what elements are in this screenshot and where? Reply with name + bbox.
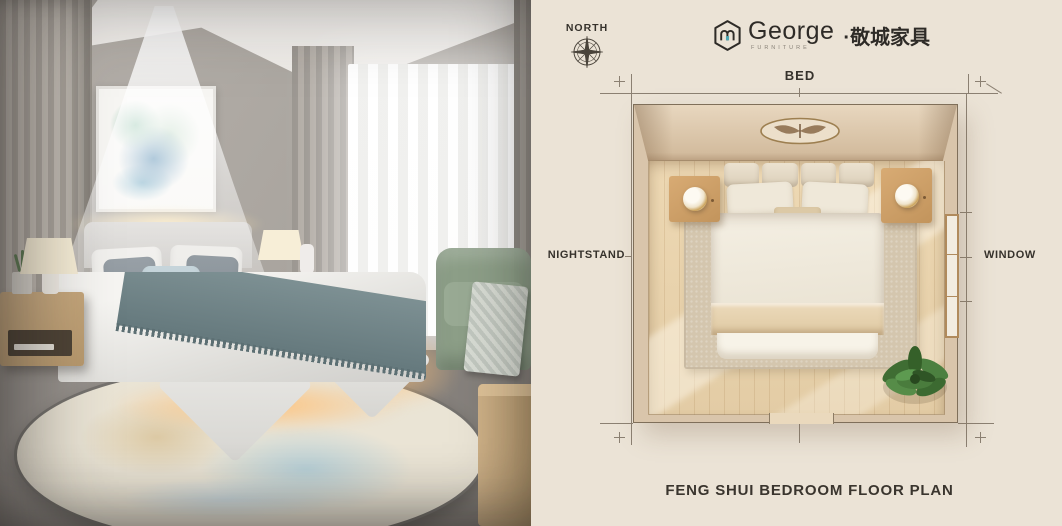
dimension-tick (631, 74, 632, 94)
brand-division: FURNITURE (751, 46, 834, 52)
room-outline (633, 104, 958, 423)
mattress-foot (717, 333, 878, 359)
brand-wordmark: George FURNITURE (748, 19, 834, 52)
window-label: WINDOW (984, 249, 1036, 261)
hexagon-monogram-icon (712, 19, 743, 52)
brand-name: George (748, 19, 834, 44)
potted-plant-top-view (877, 335, 955, 419)
dimension-tick (968, 74, 969, 94)
window-tick (960, 301, 972, 302)
dimension-line-left (631, 93, 632, 445)
window-tick (960, 212, 972, 213)
north-label: NORTH (561, 22, 613, 34)
door-opening (769, 413, 834, 424)
brand-logo: George FURNITURE ·敬城家具 (712, 19, 930, 52)
bed-label: BED (635, 68, 965, 83)
blanket-fold (711, 303, 884, 335)
table-lamp-left (20, 238, 78, 274)
window-tick (960, 257, 972, 258)
dimension-tick (799, 88, 800, 97)
nightstand-top-view-right (881, 168, 932, 223)
throw-blanket (116, 272, 426, 378)
floating-bed (58, 272, 426, 382)
compass-rose-icon (569, 34, 605, 70)
window-top-view (945, 214, 959, 338)
left-photo-panel (0, 0, 531, 526)
corner-plus-marker (614, 432, 625, 443)
corner-plus-marker (975, 76, 986, 87)
ad-composite: NORTH George FURNITURE ·敬城家具 (0, 0, 1062, 526)
nightstand-left (0, 292, 84, 366)
nightstand-label: NIGHTSTAND (541, 249, 625, 261)
nightstand-tick (625, 256, 632, 257)
candle-jar (300, 244, 314, 274)
wood-bench (478, 384, 531, 526)
knit-throw (463, 281, 528, 376)
corner-plus-marker (614, 76, 625, 87)
nightstand-top-view-left (669, 176, 720, 222)
book (14, 344, 54, 350)
brand-cjk-name: ·敬城家具 (843, 21, 930, 50)
plan-caption: FENG SHUI BEDROOM FLOOR PLAN (544, 482, 1062, 499)
nightstand-shelf (8, 330, 72, 356)
corner-plus-marker (975, 432, 986, 443)
dimension-line-bottom-right (958, 423, 994, 424)
bed-top-view (711, 161, 884, 359)
right-plan-panel: NORTH George FURNITURE ·敬城家具 (531, 0, 1062, 526)
dimension-line-bottom-left (600, 423, 633, 424)
lamp-top-view (895, 184, 919, 208)
small-plant-pot (12, 272, 32, 294)
oval-wall-decor (758, 116, 842, 146)
dimension-line-right (966, 93, 967, 447)
table-lamp-right (258, 230, 304, 260)
lamp-top-view (683, 187, 707, 211)
